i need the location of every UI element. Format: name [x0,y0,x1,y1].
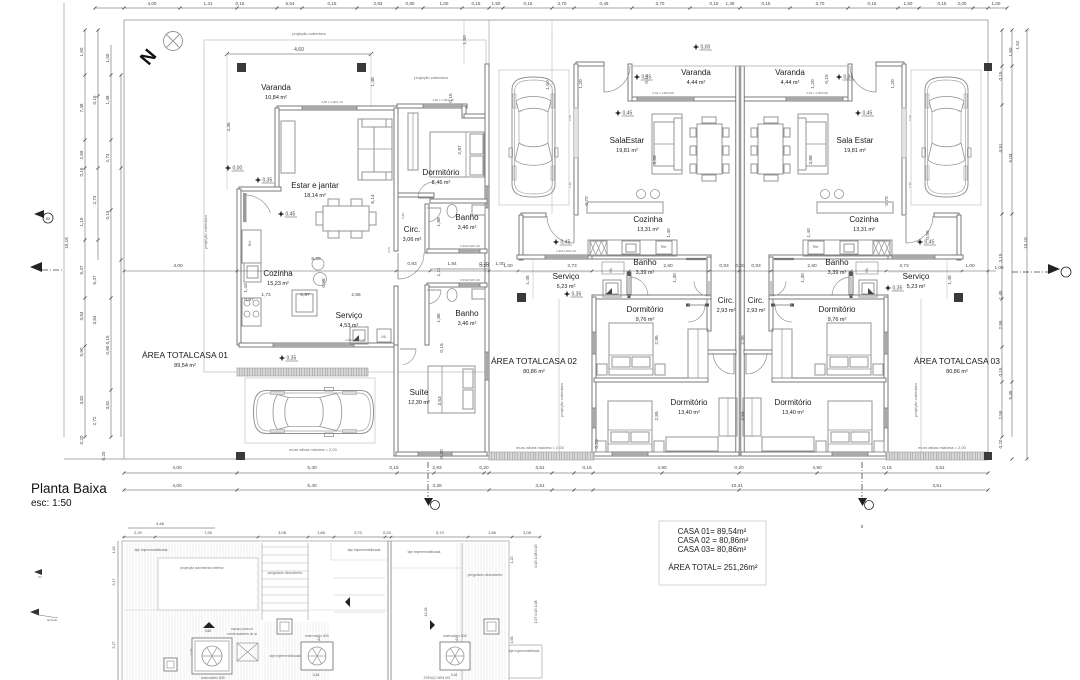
svg-text:2,72: 2,72 [92,416,97,425]
svg-text:1,00: 1,00 [503,263,513,269]
svg-text:0,15: 0,15 [582,465,592,471]
svg-text:0,15: 0,15 [824,74,830,84]
svg-text:0,20: 0,20 [479,465,489,471]
svg-text:Suíte: Suíte [410,388,429,397]
svg-text:2,83: 2,83 [374,1,383,6]
svg-text:5,64: 5,64 [286,1,295,6]
svg-text:Planta Baixa: Planta Baixa [31,481,107,496]
svg-text:80,86 m²: 80,86 m² [523,369,545,375]
svg-text:laje impermeabilizada: laje impermeabilizada [348,548,381,552]
svg-text:1,68: 1,68 [510,637,514,644]
svg-text:15,16: 15,16 [64,237,69,249]
svg-text:1,50: 1,50 [904,1,913,6]
svg-text:2,55: 2,55 [654,411,660,421]
svg-text:1,11: 1,11 [436,267,442,276]
svg-text:4,00: 4,00 [173,263,183,269]
svg-text:0,20: 0,20 [594,439,600,449]
svg-text:4,00: 4,00 [148,1,157,6]
svg-text:0,90: 0,90 [79,347,84,356]
svg-text:1,73: 1,73 [261,292,271,298]
svg-text:0,15: 0,15 [644,74,650,84]
svg-text:0,15: 0,15 [439,343,445,353]
svg-text:laje impermeabilizada: laje impermeabilizada [509,649,540,653]
svg-text:4,91: 4,91 [998,143,1003,152]
svg-text:15,23 m²: 15,23 m² [267,281,289,287]
svg-text:0,60x0,60/1,60: 0,60x0,60/1,60 [460,278,480,282]
svg-text:2,93 m²: 2,93 m² [717,308,736,314]
svg-text:0,35: 0,35 [287,356,297,362]
svg-text:2,45: 2,45 [908,115,912,121]
svg-text:1,48: 1,48 [112,547,116,554]
svg-text:0,20: 0,20 [79,435,84,444]
svg-text:0,93: 0,93 [751,263,761,269]
svg-text:4,90: 4,90 [657,465,667,471]
svg-text:0,45: 0,45 [286,212,296,218]
svg-text:Banho: Banho [455,213,479,222]
svg-text:3,39 m²: 3,39 m² [828,270,847,276]
svg-text:1,60x1,00/1,10: 1,60x1,00/1,10 [345,338,365,342]
svg-text:0,15: 0,15 [236,1,245,6]
svg-text:reservatório 500l: reservatório 500l [305,634,329,638]
svg-text:espaço para os: espaço para os [231,627,253,631]
svg-text:1,45: 1,45 [998,290,1003,299]
svg-text:10,84 m²: 10,84 m² [265,95,287,101]
svg-text:0,97: 0,97 [244,297,254,303]
svg-text:Circ.: Circ. [718,296,734,305]
svg-text:3,06 m²: 3,06 m² [403,237,422,243]
svg-text:Cozinha: Cozinha [263,269,293,278]
svg-text:15,16: 15,16 [1023,237,1028,249]
svg-text:1,86: 1,86 [436,313,442,323]
svg-text:5,47: 5,47 [79,265,84,274]
svg-text:2,74: 2,74 [92,195,97,204]
svg-text:0,15: 0,15 [389,465,399,471]
svg-text:0,80: 0,80 [406,1,415,6]
svg-text:2,87: 2,87 [457,145,463,155]
svg-text:3,08: 3,08 [523,530,532,535]
svg-text:1,50: 1,50 [462,35,468,45]
svg-text:Varanda: Varanda [681,68,711,77]
svg-text:3,51: 3,51 [935,465,945,471]
svg-text:3,51: 3,51 [535,465,545,471]
svg-text:CASA 02 = 80,86m²: CASA 02 = 80,86m² [678,536,749,545]
svg-text:3,88: 3,88 [652,155,658,165]
svg-text:Serviço: Serviço [553,272,580,281]
svg-text:1,40: 1,40 [666,228,672,238]
svg-text:ÁREA TOTALCASA 01: ÁREA TOTALCASA 01 [142,350,228,360]
svg-text:4,44 m²: 4,44 m² [687,80,706,86]
svg-text:0,70: 0,70 [584,196,590,206]
svg-text:5,27: 5,27 [112,642,116,649]
svg-text:Estar e jantar: Estar e jantar [291,181,339,190]
svg-text:ÁREA TOTALCASA 02: ÁREA TOTALCASA 02 [491,356,577,366]
svg-text:ML: ML [381,335,386,339]
svg-text:5,25: 5,25 [311,256,321,262]
svg-text:13,31 m²: 13,31 m² [637,227,659,233]
svg-text:Dormitório: Dormitório [671,398,708,407]
svg-text:2,95: 2,95 [654,335,660,345]
svg-text:1,60x1,00/1,10: 1,60x1,00/1,10 [556,249,576,253]
svg-text:1,45: 1,45 [525,275,531,285]
svg-text:4,53 m²: 4,53 m² [340,323,359,329]
svg-text:reservatório 500l: reservatório 500l [443,634,467,638]
svg-text:0,15: 0,15 [472,1,481,6]
svg-text:0,35: 0,35 [572,292,582,298]
svg-text:12,30 m²: 12,30 m² [408,400,430,406]
svg-text:pergolado descoberto: pergolado descoberto [268,571,303,575]
svg-text:0,45: 0,45 [623,111,633,117]
svg-text:1,00: 1,00 [995,265,1004,270]
svg-text:5,45: 5,45 [1008,390,1013,399]
svg-text:5,40: 5,40 [307,483,317,489]
svg-text:2,60 x 1,00/1,10: 2,60 x 1,00/1,10 [321,100,343,104]
svg-text:Sala Estar: Sala Estar [837,136,874,145]
svg-text:0,15: 0,15 [105,210,110,219]
svg-text:Ref.: Ref. [813,245,820,249]
svg-text:SalaEstar: SalaEstar [610,136,645,145]
svg-text:13,31 m²: 13,31 m² [853,227,875,233]
svg-text:2,04 x 1,06/0,98: 2,04 x 1,06/0,98 [652,91,674,95]
svg-text:3,88: 3,88 [808,155,814,165]
svg-text:2,74: 2,74 [105,153,110,162]
svg-text:5,23 m²: 5,23 m² [907,284,926,290]
svg-text:0,35: 0,35 [844,75,854,81]
svg-text:10,31: 10,31 [731,483,743,489]
svg-text:2,04 x 1,06/0,98: 2,04 x 1,06/0,98 [806,91,828,95]
svg-text:5,23 m²: 5,23 m² [557,284,576,290]
svg-text:3,08: 3,08 [278,530,287,535]
svg-text:0,15: 0,15 [328,1,337,6]
svg-text:CASA 01= 89,54m²: CASA 01= 89,54m² [678,527,747,536]
svg-text:2,69: 2,69 [79,150,84,159]
svg-text:1,30: 1,30 [800,273,806,283]
svg-text:02: 02 [38,575,42,579]
svg-text:3,70: 3,70 [354,530,363,535]
svg-text:0,45: 0,45 [863,111,873,117]
svg-text:0,15: 0,15 [998,71,1003,80]
svg-text:N: N [136,45,161,69]
svg-text:0,70: 0,70 [387,247,391,253]
svg-text:projeção cobertura: projeção cobertura [414,75,448,80]
svg-text:18,14 m²: 18,14 m² [304,193,326,199]
svg-text:0,35: 0,35 [263,178,273,184]
svg-text:1,50: 1,50 [79,47,84,56]
svg-text:Dormitório: Dormitório [423,168,460,177]
svg-text:3,51: 3,51 [535,483,545,489]
svg-text:3,15: 3,15 [998,253,1003,262]
svg-text:0,35: 0,35 [893,286,903,292]
svg-text:1,07 0,15 1,08: 1,07 0,15 1,08 [534,601,538,624]
svg-text:0,15: 0,15 [882,465,892,471]
svg-text:1,45: 1,45 [947,275,953,285]
svg-text:3,53: 3,53 [437,396,443,406]
svg-text:muro altura máxima = 2,00: muro altura máxima = 2,00 [289,447,337,452]
svg-text:1,00: 1,00 [440,1,449,6]
svg-text:3,82: 3,82 [105,400,110,409]
svg-text:Serviço: Serviço [903,272,930,281]
svg-text:3,82: 3,82 [79,395,84,404]
svg-text:1,48: 1,48 [105,95,110,104]
svg-text:7,26: 7,26 [204,530,213,535]
svg-text:0,15: 0,15 [524,1,533,6]
svg-text:ML: ML [609,267,613,272]
svg-text:projeção pavimento inferior: projeção pavimento inferior [180,566,224,570]
svg-text:1,86: 1,86 [488,530,497,535]
svg-text:projeção cobertura: projeção cobertura [292,31,326,36]
svg-text:4,36: 4,36 [226,122,232,132]
svg-text:0,98: 0,98 [321,278,327,288]
svg-text:1,20: 1,20 [890,79,896,89]
svg-text:0,15 1,08 0,15: 0,15 1,08 0,15 [534,545,538,568]
svg-text:3,60: 3,60 [205,629,212,633]
svg-text:0,15: 0,15 [868,1,877,6]
svg-text:80,86 m²: 80,86 m² [946,369,968,375]
svg-text:0,20: 0,20 [101,451,106,460]
svg-text:Ref.: Ref. [661,245,668,249]
svg-text:1,00: 1,00 [965,263,975,269]
svg-text:Dormitório: Dormitório [775,398,812,407]
svg-text:esc: 1:50: esc: 1:50 [31,498,72,509]
svg-text:CASA 03= 80,86m²: CASA 03= 80,86m² [678,545,747,554]
svg-text:13,40 m²: 13,40 m² [782,410,804,416]
svg-text:reservatório 500l: reservatório 500l [201,676,225,680]
svg-text:1,86: 1,86 [436,217,442,227]
svg-text:13,40 m²: 13,40 m² [678,410,700,416]
svg-text:0,15: 0,15 [710,1,719,6]
svg-text:2,60: 2,60 [807,263,817,269]
svg-text:1,60 x 1,00/1,10: 1,60 x 1,00/1,10 [432,98,454,102]
svg-text:5,04: 5,04 [1008,153,1013,162]
svg-text:2,00: 2,00 [958,1,967,6]
svg-text:02: 02 [46,216,51,221]
svg-text:2,93 m²: 2,93 m² [747,308,766,314]
svg-text:19,81 m²: 19,81 m² [844,148,866,154]
svg-text:Ref.: Ref. [248,240,252,247]
svg-text:1,19: 1,19 [79,217,84,226]
svg-text:0,20: 0,20 [383,530,392,535]
svg-text:1,43: 1,43 [243,283,249,293]
svg-text:1,20: 1,20 [578,79,584,89]
svg-text:1,23: 1,23 [510,557,514,564]
svg-text:2,95: 2,95 [998,320,1003,329]
svg-text:3,51: 3,51 [932,483,942,489]
svg-text:5,40: 5,40 [307,465,317,471]
svg-text:Serviço: Serviço [336,311,363,320]
svg-text:4,90: 4,90 [812,465,822,471]
svg-text:7,48: 7,48 [79,103,84,112]
svg-text:1,40: 1,40 [806,228,812,238]
svg-text:condensadores de ar: condensadores de ar [227,632,258,636]
svg-text:6,14: 6,14 [370,194,376,204]
svg-text:3,84: 3,84 [92,315,97,324]
svg-text:3,70: 3,70 [656,1,665,6]
svg-text:0,20: 0,20 [439,449,445,459]
svg-text:0,20: 0,20 [998,439,1003,448]
svg-text:4,00: 4,00 [172,483,182,489]
svg-text:1,86: 1,86 [317,530,326,535]
svg-text:2,55: 2,55 [998,410,1003,419]
svg-text:12,28: 12,28 [424,608,428,617]
svg-text:0: 0 [861,524,864,529]
svg-text:laje impermeabilizada: laje impermeabilizada [270,654,301,658]
svg-text:1,30: 1,30 [672,273,678,283]
svg-text:0,70: 0,70 [884,196,890,206]
svg-text:5,47: 5,47 [92,275,97,284]
svg-text:ML: ML [865,267,869,272]
svg-text:0,20: 0,20 [735,263,745,269]
svg-text:4,48: 4,48 [156,521,165,526]
svg-text:ÁREA TOTALCASA 03: ÁREA TOTALCASA 03 [914,356,1000,366]
svg-text:fachada: fachada [47,618,57,622]
svg-text:1,48: 1,48 [370,77,376,87]
svg-text:3,70: 3,70 [816,1,825,6]
svg-text:0,00: 0,00 [233,166,243,172]
svg-text:4,44 m²: 4,44 m² [781,80,800,86]
svg-text:0,20: 0,20 [479,263,489,269]
svg-text:2,56: 2,56 [351,292,361,298]
svg-text:1,52: 1,52 [1015,40,1020,49]
svg-text:5,70: 5,70 [436,530,445,535]
svg-text:0,55: 0,55 [925,230,931,240]
svg-text:4,00: 4,00 [172,465,182,471]
svg-text:4,60: 4,60 [294,47,304,53]
svg-text:19,81 m²: 19,81 m² [616,148,638,154]
svg-text:projeção cobertura: projeção cobertura [203,215,208,249]
svg-text:9,76 m²: 9,76 m² [828,317,847,323]
svg-text:pergolado descoberto: pergolado descoberto [468,573,503,577]
svg-text:0,90 0,15: 0,90 0,15 [105,335,110,355]
svg-text:1,50: 1,50 [1008,47,1013,56]
svg-text:ÁREA TOTAL= 251,26m²: ÁREA TOTAL= 251,26m² [668,563,757,572]
svg-text:projeção cobertura: projeção cobertura [559,383,564,417]
svg-text:Cozinha: Cozinha [849,215,879,224]
svg-text:Varanda: Varanda [261,83,291,92]
svg-text:3,84: 3,84 [79,311,84,320]
svg-text:Dormitório: Dormitório [819,305,856,314]
svg-text:2,45: 2,45 [568,115,572,121]
svg-text:1,41: 1,41 [204,1,213,6]
svg-text:8,46 m²: 8,46 m² [432,180,451,186]
svg-text:0,20: 0,20 [734,465,744,471]
svg-text:3,73: 3,73 [567,263,577,269]
svg-text:2,60: 2,60 [663,263,673,269]
svg-text:0,80: 0,80 [401,213,405,219]
svg-text:3,73: 3,73 [899,263,909,269]
svg-text:0,45: 0,45 [600,1,609,6]
svg-text:laje impermeabilizada: laje impermeabilizada [408,550,441,554]
svg-text:1,36: 1,36 [726,1,735,6]
svg-text:laje impermeabilizada: laje impermeabilizada [135,548,168,552]
svg-text:1,00: 1,00 [992,1,1001,6]
svg-text:3,46 m²: 3,46 m² [458,225,477,231]
svg-text:0,00: 0,00 [701,45,711,51]
svg-text:2,95: 2,95 [740,335,746,345]
svg-text:3,47: 3,47 [112,579,116,586]
svg-text:0,15: 0,15 [762,1,771,6]
svg-text:projeção cobertura: projeção cobertura [913,383,918,417]
svg-text:2,20: 2,20 [134,530,143,535]
svg-text:0,15: 0,15 [79,167,84,176]
svg-text:3,16: 3,16 [313,673,320,677]
svg-text:0,93: 0,93 [719,263,729,269]
svg-text:0,60x0,60/1,60: 0,60x0,60/1,60 [460,244,480,248]
svg-text:1,40: 1,40 [908,182,912,188]
svg-text:0,93: 0,93 [407,261,417,267]
svg-text:0,15: 0,15 [92,95,97,104]
svg-text:9,76 m²: 9,76 m² [636,317,655,323]
svg-text:1,84: 1,84 [447,261,457,267]
svg-text:Banho: Banho [633,258,657,267]
svg-text:muro altura máxima = 2,00: muro altura máxima = 2,00 [516,445,564,450]
svg-text:89,54 m²: 89,54 m² [174,363,196,369]
svg-text:3,46 m²: 3,46 m² [458,321,477,327]
svg-text:0,15: 0,15 [938,1,947,6]
svg-text:Circ.: Circ. [404,225,420,234]
svg-text:2,55: 2,55 [740,411,746,421]
svg-text:1,40: 1,40 [568,182,572,188]
svg-text:Varanda: Varanda [775,68,805,77]
svg-text:3,28: 3,28 [432,483,442,489]
svg-text:1,20: 1,20 [810,79,816,89]
svg-text:Banho: Banho [825,258,849,267]
svg-text:1,50: 1,50 [492,1,501,6]
svg-text:3,16: 3,16 [451,673,458,677]
svg-text:Banho: Banho [455,309,479,318]
svg-text:1,50: 1,50 [105,53,110,62]
svg-text:2,93: 2,93 [432,465,442,471]
svg-text:Dormitório: Dormitório [627,305,664,314]
svg-text:0,45: 0,45 [561,240,571,246]
svg-text:muro altura máxima = 2,00: muro altura máxima = 2,00 [918,445,966,450]
svg-text:0,97: 0,97 [300,292,310,298]
svg-text:Circ.: Circ. [748,296,764,305]
svg-text:0,15: 0,15 [998,367,1003,376]
svg-text:Cozinha: Cozinha [633,215,663,224]
svg-text:3,70: 3,70 [558,1,567,6]
svg-text:ESPAÇO MÍNI MO: ESPAÇO MÍNI MO [424,676,451,680]
